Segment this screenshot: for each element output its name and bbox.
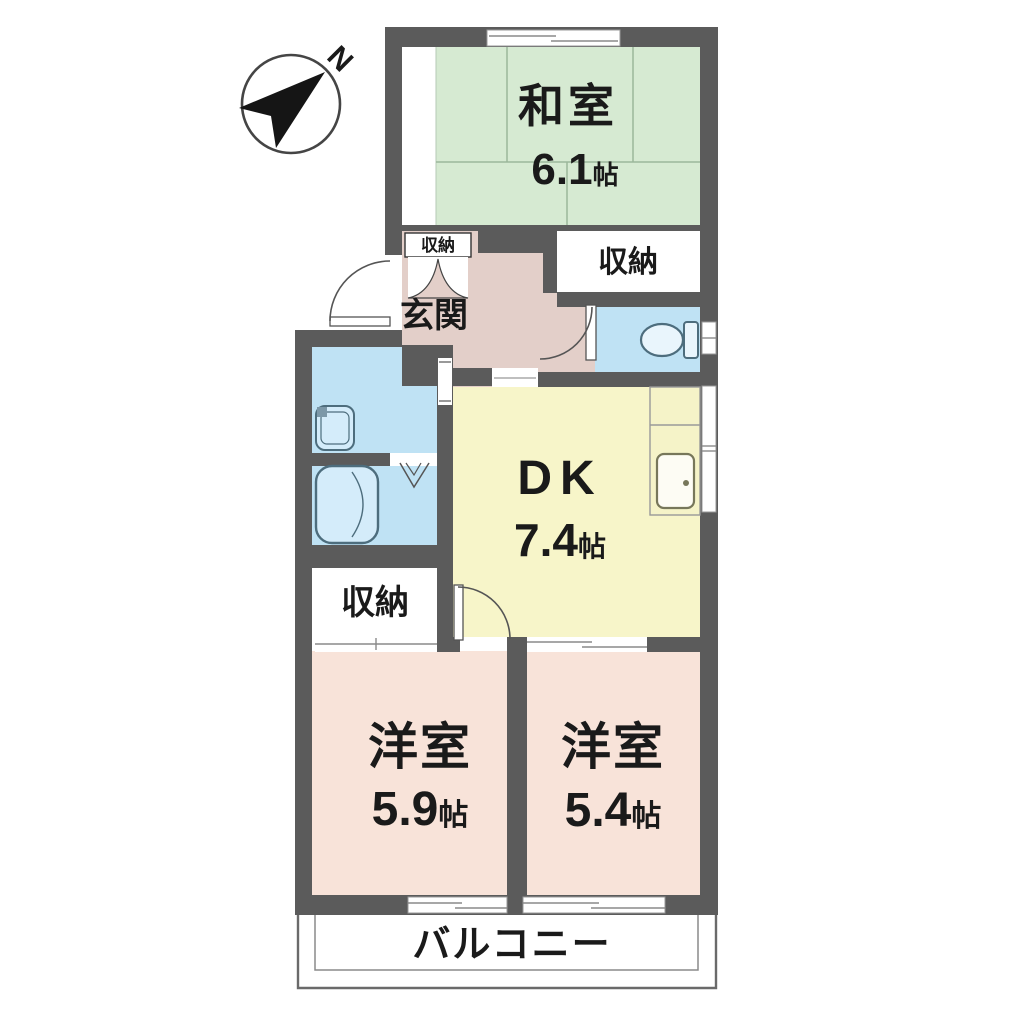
label-western-b: 洋室 [561,719,665,775]
toilet-tank-icon [684,322,698,358]
label-closet-west: 収納 [341,584,409,622]
kitchen-faucet-icon [683,480,689,486]
window-western-b [523,897,665,913]
window-western-a [408,897,507,913]
floor-plan: N [0,0,1024,1024]
window-washitsu-top [487,30,620,46]
bathroom-doorway [390,453,437,466]
label-entrance: 玄関 [400,297,468,335]
washroom-doorway [438,358,452,405]
entrance-door-leaf [330,317,390,326]
label-entrance-closet: 収納 [421,235,455,255]
label-washitsu: 和室 [518,80,618,132]
basin-faucet-icon [317,407,327,417]
room-washitsu-edge-strip [402,47,436,225]
dk-bedroom-sliding-doors [527,637,647,652]
window-kitchen [702,386,716,512]
room-washitsu [436,47,700,225]
label-western-a: 洋室 [368,719,472,775]
dk-door-leaf [454,585,463,640]
kitchen-sink-icon [657,454,694,508]
bathtub-icon [316,466,378,543]
label-closet-east: 収納 [598,246,658,279]
toilet-icon [641,324,683,356]
label-balcony: バルコニー [412,924,611,966]
floor-plan-page: N [0,0,1024,1024]
label-dk: DK [517,452,602,505]
